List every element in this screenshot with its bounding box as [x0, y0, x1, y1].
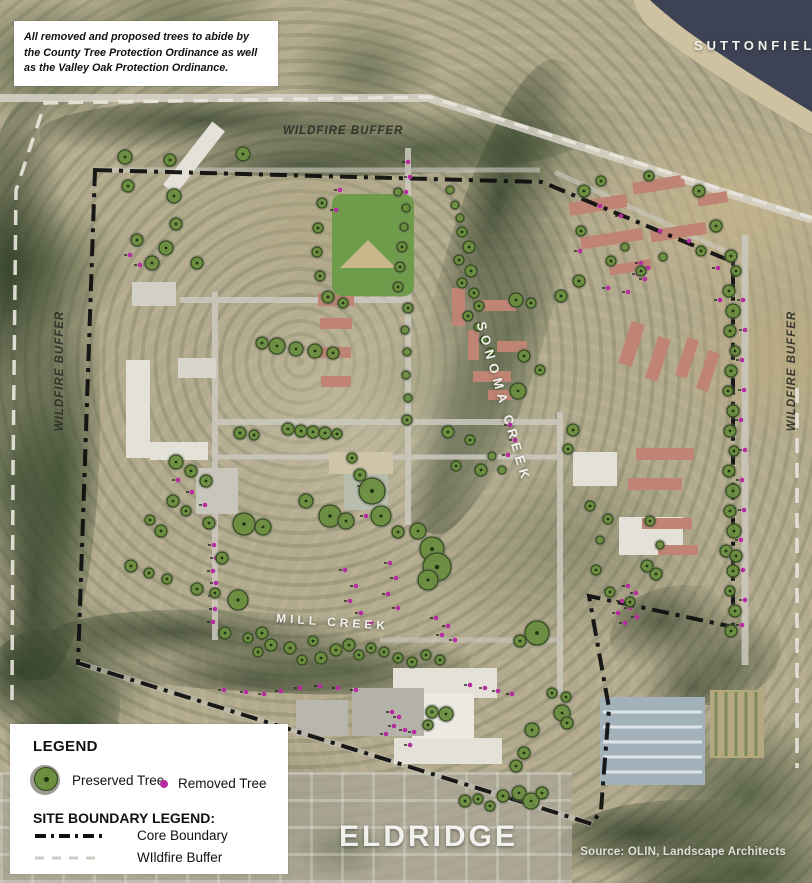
tree-trunk-dot	[655, 573, 658, 576]
tree-trunk-dot	[289, 647, 292, 650]
tree-trunk-dot	[515, 299, 518, 302]
tree-trunk-dot	[560, 295, 563, 298]
tree-trunk-dot	[609, 591, 612, 594]
removed-tree-marker	[716, 266, 721, 271]
tree-trunk-dot	[247, 637, 250, 640]
removed-tree-marker	[354, 688, 359, 693]
tree-trunk-dot	[464, 800, 467, 803]
preserved-tree-marker	[596, 536, 604, 544]
removed-tree-marker	[619, 214, 624, 219]
building	[675, 337, 699, 379]
legend-preserved-row: Preserved Tree	[30, 764, 164, 796]
tree-trunk-dot	[130, 565, 133, 568]
preserved-tree-marker	[446, 186, 454, 194]
removed-tree-marker	[496, 689, 501, 694]
tree-trunk-dot	[351, 457, 354, 460]
tree-trunk-dot	[358, 654, 361, 657]
tree-trunk-dot	[316, 251, 319, 254]
tree-trunk-dot	[236, 598, 239, 601]
removed-tree-marker	[388, 561, 393, 566]
hospital-building	[394, 738, 502, 764]
removed-tree-marker	[244, 690, 249, 695]
tree-trunk-dot	[336, 433, 339, 436]
removed-tree-marker	[623, 621, 628, 626]
removed-tree-marker	[742, 388, 747, 393]
tree-trunk-dot	[425, 654, 428, 657]
removed-tree-marker	[203, 503, 208, 508]
tree-trunk-dot	[646, 565, 649, 568]
tree-trunk-dot	[732, 410, 735, 413]
tree-trunk-dot	[324, 432, 327, 435]
removed-tree-marker	[262, 692, 267, 697]
preserved-tree-marker	[401, 326, 409, 334]
site-boundary-legend-title: SITE BOUNDARY LEGEND:	[33, 810, 215, 826]
tree-trunk-dot	[468, 246, 471, 249]
tree-trunk-dot	[426, 578, 429, 581]
removed-tree-marker	[740, 623, 745, 628]
preserved-tree-marker	[402, 204, 410, 212]
tree-trunk-dot	[729, 510, 732, 513]
tree-trunk-dot	[431, 711, 434, 714]
tree-trunk-dot	[583, 190, 586, 193]
removed-tree-marker	[626, 584, 631, 589]
removed-tree-marker	[687, 239, 692, 244]
removed-tree-marker	[510, 692, 515, 697]
preserved-tree-marker	[659, 253, 667, 261]
building	[573, 452, 617, 486]
tree-trunk-dot	[287, 428, 290, 431]
tree-trunk-dot	[445, 713, 448, 716]
removed-tree-marker	[743, 328, 748, 333]
tree-trunk-dot	[328, 514, 332, 518]
tree-trunk-dot	[595, 569, 598, 572]
removed-tree-symbol	[160, 780, 168, 788]
legend-buffer-row: WIldfire Buffer	[33, 850, 222, 865]
tree-trunk-dot	[148, 572, 151, 575]
tree-trunk-dot	[332, 352, 335, 355]
tree-trunk-dot	[406, 419, 409, 422]
tree-trunk-dot	[551, 692, 554, 695]
tree-trunk-dot	[185, 510, 188, 513]
tree-trunk-dot	[224, 632, 227, 635]
tree-trunk-dot	[469, 439, 472, 442]
removed-tree-marker	[742, 508, 747, 513]
tree-trunk-dot	[427, 724, 430, 727]
building	[618, 321, 645, 367]
tree-trunk-dot	[461, 231, 464, 234]
label-eldridge: ELDRIDGE	[339, 820, 518, 854]
removed-tree-marker	[740, 358, 745, 363]
tree-trunk-dot	[270, 644, 273, 647]
legend-buffer-label: WIldfire Buffer	[137, 850, 222, 865]
tree-trunk-dot	[728, 290, 731, 293]
tree-trunk-dot	[735, 555, 738, 558]
tree-trunk-dot	[149, 519, 152, 522]
building	[636, 448, 694, 460]
source-credit: Source: OLIN, Landscape Architects	[580, 846, 786, 858]
tree-trunk-dot	[327, 296, 330, 299]
tree-trunk-dot	[567, 448, 570, 451]
removed-tree-marker	[354, 584, 359, 589]
removed-tree-marker	[364, 514, 369, 519]
tree-trunk-dot	[523, 752, 526, 755]
tree-trunk-dot	[321, 202, 324, 205]
removed-tree-marker	[211, 620, 216, 625]
tree-trunk-dot	[312, 431, 315, 434]
tree-trunk-dot	[727, 390, 730, 393]
tree-trunk-dot	[261, 632, 264, 635]
tree-trunk-dot	[175, 223, 178, 226]
tree-trunk-dot	[262, 526, 265, 529]
removed-tree-marker	[741, 568, 746, 573]
preserved-tree-marker	[402, 371, 410, 379]
ordinance-note-text: All removed and proposed trees to abide …	[24, 31, 257, 74]
tree-trunk-dot	[733, 530, 736, 533]
tree-trunk-dot	[698, 190, 701, 193]
tree-trunk-dot	[489, 805, 492, 808]
tree-trunk-dot	[399, 266, 402, 269]
tree-trunk-dot	[600, 180, 603, 183]
removed-tree-marker	[741, 298, 746, 303]
tree-trunk-dot	[314, 350, 317, 353]
tree-trunk-dot	[733, 450, 736, 453]
tree-trunk-dot	[648, 175, 651, 178]
tree-trunk-dot	[345, 520, 348, 523]
removed-tree-marker	[211, 569, 216, 574]
tree-trunk-dot	[221, 557, 224, 560]
wildfire-buffer-sample	[33, 854, 105, 862]
removed-tree-marker	[138, 263, 143, 268]
removed-tree-marker	[318, 684, 323, 689]
site-plan-map: SUTTONFIELD ELDRIDGE SONOMA CREEK MILL C…	[0, 0, 812, 883]
removed-tree-marker	[396, 606, 401, 611]
removed-tree-marker	[384, 732, 389, 737]
removed-tree-marker	[336, 686, 341, 691]
removed-tree-marker	[440, 633, 445, 638]
building	[645, 336, 671, 382]
greenhouses	[600, 690, 764, 785]
tree-trunk-dot	[473, 292, 476, 295]
tree-trunk-dot	[295, 348, 298, 351]
tree-trunk-dot	[458, 259, 461, 262]
tree-trunk-dot	[165, 247, 168, 250]
preserved-tree-marker	[488, 452, 496, 460]
tree-trunk-dot	[317, 227, 320, 230]
preserved-tree-marker	[656, 541, 664, 549]
tree-trunk-dot	[169, 159, 172, 162]
tree-trunk-dot	[335, 649, 338, 652]
removed-tree-marker	[446, 624, 451, 629]
tree-trunk-dot	[379, 514, 382, 517]
removed-tree-marker	[334, 208, 339, 213]
tree-trunk-swatch	[44, 777, 49, 782]
removed-tree-marker	[412, 730, 417, 735]
tree-trunk-dot	[127, 185, 130, 188]
tree-trunk-dot	[208, 522, 211, 525]
tree-trunk-dot	[461, 282, 464, 285]
tree-trunk-dot	[359, 474, 362, 477]
preserved-tree-marker	[456, 214, 464, 222]
tree-trunk-dot	[478, 305, 481, 308]
tree-trunk-dot	[561, 712, 564, 715]
tree-trunk-dot	[435, 565, 439, 569]
legend-removed-label: Removed Tree	[178, 776, 267, 791]
building	[132, 282, 176, 306]
tree-trunk-dot	[370, 647, 373, 650]
tree-trunk-dot	[205, 480, 208, 483]
tree-trunk-dot	[417, 530, 420, 533]
removed-tree-marker	[338, 188, 343, 193]
removed-tree-marker	[128, 253, 133, 258]
removed-tree-marker	[386, 592, 391, 597]
removed-tree-marker	[598, 204, 603, 209]
tree-trunk-dot	[407, 307, 410, 310]
tree-trunk-dot	[725, 550, 728, 553]
tree-trunk-dot	[301, 659, 304, 662]
tree-trunk-dot	[578, 280, 581, 283]
tree-trunk-dot	[383, 651, 386, 654]
tree-trunk-dot	[729, 330, 732, 333]
tree-trunk-dot	[401, 246, 404, 249]
removed-tree-marker	[406, 160, 411, 165]
core-boundary-sample	[33, 832, 105, 840]
tree-trunk-dot	[196, 588, 199, 591]
tree-trunk-dot	[397, 286, 400, 289]
legend-preserved-label: Preserved Tree	[72, 773, 164, 788]
tree-trunk-dot	[523, 355, 526, 358]
tree-trunk-dot	[732, 310, 735, 313]
removed-tree-marker	[214, 581, 219, 586]
removed-tree-marker	[176, 478, 181, 483]
tree-trunk-dot	[319, 275, 322, 278]
removed-tree-marker	[658, 229, 663, 234]
tree-trunk-dot	[455, 465, 458, 468]
tree-trunk-dot	[242, 153, 245, 156]
removed-tree-marker	[279, 689, 284, 694]
removed-tree-marker	[739, 418, 744, 423]
tree-trunk-dot	[305, 500, 308, 503]
tree-trunk-dot	[530, 302, 533, 305]
tree-trunk-dot	[160, 530, 163, 533]
removed-tree-marker	[634, 591, 639, 596]
legend-removed-row: Removed Tree	[160, 776, 267, 791]
tree-trunk-dot	[517, 390, 520, 393]
preserved-tree-marker	[394, 188, 402, 196]
tree-trunk-dot	[261, 342, 264, 345]
tree-trunk-dot	[242, 522, 246, 526]
building	[178, 358, 216, 378]
tree-trunk-dot	[732, 570, 735, 573]
tree-trunk-dot	[300, 430, 303, 433]
tree-trunk-dot	[530, 800, 533, 803]
tree-trunk-dot	[502, 795, 505, 798]
building	[320, 318, 352, 329]
removed-tree-marker	[718, 298, 723, 303]
tree-trunk-dot	[151, 262, 154, 265]
removed-tree-marker	[212, 543, 217, 548]
removed-tree-marker	[222, 688, 227, 693]
removed-tree-marker	[408, 743, 413, 748]
legend-title: LEGEND	[33, 738, 98, 755]
preserved-tree-marker	[498, 466, 506, 474]
tree-trunk-dot	[730, 370, 733, 373]
tree-trunk-dot	[649, 520, 652, 523]
tree-trunk-dot	[447, 431, 450, 434]
building	[321, 376, 351, 387]
ordinance-note-box: All removed and proposed trees to abide …	[14, 21, 278, 86]
building	[632, 175, 685, 195]
tree-trunk-dot	[734, 350, 737, 353]
tree-trunk-dot	[729, 430, 732, 433]
tree-trunk-dot	[640, 270, 643, 273]
tree-trunk-dot	[531, 729, 534, 732]
tree-trunk-dot	[715, 225, 718, 228]
removed-tree-marker	[453, 638, 458, 643]
tree-trunk-dot	[239, 432, 242, 435]
removed-tree-marker	[626, 290, 631, 295]
tree-trunk-dot	[175, 461, 178, 464]
tree-trunk-dot	[541, 792, 544, 795]
removed-tree-marker	[578, 249, 583, 254]
tree-trunk-dot	[173, 195, 176, 198]
removed-tree-marker	[392, 724, 397, 729]
tree-trunk-dot	[572, 429, 575, 432]
removed-tree-marker	[348, 599, 353, 604]
tree-trunk-dot	[729, 590, 732, 593]
tree-trunk-dot	[172, 500, 175, 503]
removed-tree-marker	[394, 576, 399, 581]
removed-tree-marker	[404, 190, 409, 195]
tree-trunk-dot	[539, 369, 542, 372]
tree-trunk-dot	[735, 270, 738, 273]
tree-trunk-dot	[519, 640, 522, 643]
label-wildfire-buffer-top: WILDFIRE BUFFER	[283, 125, 403, 137]
removed-tree-marker	[359, 611, 364, 616]
label-wildfire-buffer-left: WILDFIRE BUFFER	[54, 291, 66, 451]
tree-trunk-dot	[430, 547, 434, 551]
tree-trunk-dot	[565, 696, 568, 699]
label-wildfire-buffer-right: WILDFIRE BUFFER	[786, 291, 798, 451]
tree-trunk-dot	[607, 518, 610, 521]
removed-tree-marker	[606, 286, 611, 291]
tree-trunk-dot	[214, 592, 217, 595]
legend-core-row: Core Boundary	[33, 828, 228, 843]
parking-lot	[296, 700, 348, 736]
removed-tree-marker	[343, 568, 348, 573]
preserved-tree-marker	[404, 394, 412, 402]
tree-trunk-dot	[257, 651, 260, 654]
removed-tree-marker	[403, 728, 408, 733]
label-suttonfield: SUTTONFIELD	[694, 38, 812, 53]
east-campus	[616, 319, 721, 398]
tree-trunk-dot	[610, 260, 613, 263]
tree-trunk-dot	[439, 659, 442, 662]
tree-trunk-dot	[411, 661, 414, 664]
tree-trunk-dot	[535, 631, 539, 635]
lake-water	[650, 0, 812, 112]
tree-trunk-dot	[348, 644, 351, 647]
buildings-layer	[126, 122, 764, 785]
tree-trunk-dot	[124, 156, 127, 159]
tree-trunk-dot	[730, 255, 733, 258]
removed-tree-marker	[213, 607, 218, 612]
preserved-tree-marker	[400, 223, 408, 231]
tree-trunk-dot	[470, 270, 473, 273]
tree-trunk-dot	[477, 798, 480, 801]
removed-tree-marker	[190, 490, 195, 495]
tree-trunk-dot	[136, 239, 139, 242]
tree-trunk-dot	[397, 531, 400, 534]
preserved-tree-marker	[621, 243, 629, 251]
tree-trunk-dot	[342, 302, 345, 305]
tree-trunk-dot	[734, 610, 737, 613]
building	[696, 350, 720, 392]
removed-tree-marker	[298, 686, 303, 691]
lake-suttonfield	[634, 0, 812, 134]
removed-tree-marker	[743, 448, 748, 453]
removed-tree-marker	[408, 175, 413, 180]
tree-trunk-dot	[480, 469, 483, 472]
removed-tree-marker	[468, 683, 473, 688]
removed-tree-marker	[616, 611, 621, 616]
removed-tree-marker	[397, 715, 402, 720]
building	[628, 478, 682, 490]
removed-tree-marker	[434, 616, 439, 621]
tree-trunk-dot	[467, 315, 470, 318]
tree-trunk-dot	[190, 470, 193, 473]
tree-trunk-dot	[276, 345, 279, 348]
preserved-tree-symbol	[30, 764, 62, 796]
legend-core-label: Core Boundary	[137, 828, 228, 843]
building	[580, 228, 643, 250]
tree-trunk-dot	[397, 657, 400, 660]
removed-tree-marker	[390, 710, 395, 715]
tree-trunk-dot	[166, 578, 169, 581]
removed-tree-marker	[635, 615, 640, 620]
removed-tree-marker	[743, 598, 748, 603]
tree-trunk-dot	[196, 262, 199, 265]
preserved-tree-marker	[451, 201, 459, 209]
tree-trunk-dot	[566, 722, 569, 725]
tree-trunk-dot	[732, 490, 735, 493]
tree-trunk-dot	[253, 434, 256, 437]
tree-trunk-dot	[370, 489, 374, 493]
tree-trunk-dot	[629, 601, 632, 604]
tree-trunk-dot	[580, 230, 583, 233]
tree-trunk-dot	[320, 657, 323, 660]
tree-trunk-dot	[728, 470, 731, 473]
tree-trunk-dot	[515, 765, 518, 768]
tree-trunk-dot	[730, 630, 733, 633]
preserved-tree-marker	[403, 348, 411, 356]
tree-trunk-dot	[589, 505, 592, 508]
tree-trunk-dot	[518, 792, 521, 795]
removed-tree-marker	[506, 453, 511, 458]
building	[126, 360, 150, 458]
tree-trunk-dot	[700, 250, 703, 253]
tree-trunk-dot	[312, 640, 315, 643]
legend-panel: LEGEND Preserved Tree Removed Tree SITE …	[10, 724, 288, 874]
removed-tree-marker	[740, 478, 745, 483]
removed-tree-marker	[483, 686, 488, 691]
